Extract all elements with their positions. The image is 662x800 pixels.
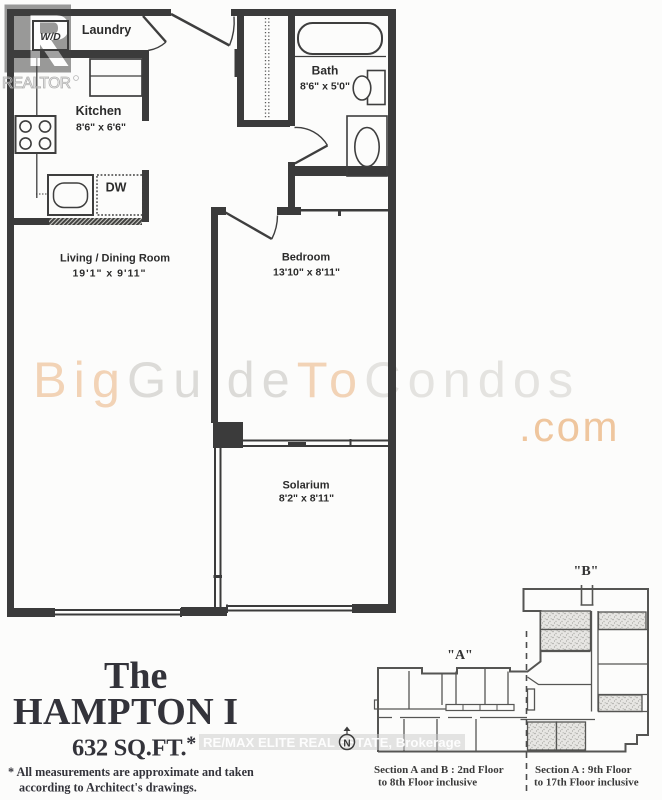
svg-text:Solarium: Solarium (282, 480, 329, 492)
svg-text:to 17th Floor inclusive: to 17th Floor inclusive (534, 777, 639, 789)
svg-text:8'2" x 8'11": 8'2" x 8'11" (279, 493, 334, 505)
svg-text:8'6" x 6'6": 8'6" x 6'6" (76, 122, 126, 134)
svg-text:.com: .com (519, 403, 620, 450)
svg-text:BigGuideToCondos: BigGuideToCondos (33, 351, 580, 408)
svg-text:* All measurements are approxi: * All measurements are approximate and t… (8, 765, 254, 779)
svg-text:19'1" x 9'11": 19'1" x 9'11" (72, 268, 146, 280)
svg-text:to 8th Floor inclusive: to 8th Floor inclusive (378, 777, 477, 789)
svg-text:W/D: W/D (40, 31, 61, 43)
svg-text:Bedroom: Bedroom (282, 252, 331, 264)
svg-text:Laundry: Laundry (82, 23, 131, 37)
svg-text:Kitchen: Kitchen (76, 104, 122, 118)
svg-text:13'10" x 8'11": 13'10" x 8'11" (273, 267, 340, 279)
svg-text:632 SQ.FT.*: 632 SQ.FT.* (72, 733, 196, 762)
svg-text:"B": "B" (574, 564, 599, 579)
svg-text:Living / Dining Room: Living / Dining Room (60, 253, 170, 265)
svg-text:DW: DW (106, 181, 127, 195)
svg-text:REALTOR: REALTOR (2, 75, 72, 92)
svg-text:N: N (343, 739, 350, 750)
svg-text:8'6" x 5'0": 8'6" x 5'0" (300, 81, 350, 93)
svg-text:Bath: Bath (312, 64, 339, 78)
svg-text:Section A : 9th Floor: Section A : 9th Floor (535, 764, 632, 776)
svg-text:"A": "A" (447, 648, 473, 663)
svg-text:HAMPTONI: HAMPTONI (13, 691, 239, 733)
svg-text:according to Architect's drawi: according to Architect's drawings. (19, 781, 197, 795)
svg-text:RE/MAX ELITE REAL ESTATE, Brok: RE/MAX ELITE REAL ESTATE, Brokerage (203, 735, 461, 750)
svg-text:Section A and B : 2nd Floor: Section A and B : 2nd Floor (374, 764, 504, 776)
